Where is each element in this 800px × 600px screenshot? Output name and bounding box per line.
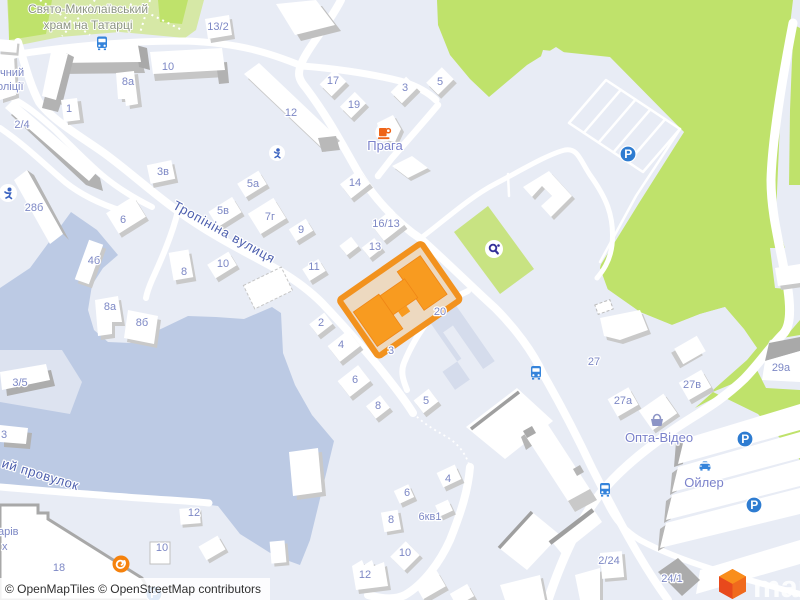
svg-text:8: 8 [375,400,381,412]
svg-text:храм на Татарці: храм на Татарці [43,18,132,32]
svg-text:10: 10 [156,542,168,554]
svg-text:13/2: 13/2 [207,21,228,33]
svg-text:3: 3 [1,429,7,441]
svg-text:19: 19 [348,99,360,111]
svg-text:Прага: Прага [367,138,403,153]
svg-text:9: 9 [298,224,304,236]
svg-text:10: 10 [217,258,229,270]
svg-text:16/13: 16/13 [372,218,400,230]
svg-text:чний: чний [0,67,24,79]
svg-text:5a: 5a [247,178,260,190]
svg-text:13: 13 [369,241,381,253]
svg-text:2/4: 2/4 [14,119,29,131]
svg-text:2/24: 2/24 [598,555,619,567]
svg-text:Свято-Миколаївський: Свято-Миколаївський [28,2,148,16]
svg-text:3: 3 [388,345,394,357]
svg-text:12: 12 [188,507,200,519]
svg-text:17: 17 [327,75,339,87]
svg-text:© OpenMapTiles © OpenStreetMap: © OpenMapTiles © OpenStreetMap contribut… [5,582,261,596]
svg-text:Ойлер: Ойлер [684,475,723,490]
svg-text:maptiler: maptiler [753,569,800,600]
svg-text:7г: 7г [265,211,275,223]
svg-text:10: 10 [399,547,411,559]
svg-text:4: 4 [338,339,344,351]
svg-text:х: х [2,541,8,553]
svg-text:2: 2 [318,317,324,329]
svg-text:1: 1 [66,103,72,115]
svg-text:3: 3 [402,82,408,94]
svg-text:4: 4 [445,473,451,485]
svg-text:27в: 27в [683,379,701,391]
svg-text:8a: 8a [122,76,135,88]
svg-text:29a: 29a [772,362,791,374]
svg-text:6: 6 [404,487,410,499]
svg-text:6: 6 [120,214,126,226]
svg-text:4б: 4б [88,255,100,267]
svg-text:3в: 3в [157,166,169,178]
svg-text:5: 5 [437,76,443,88]
svg-text:18: 18 [53,562,65,574]
svg-text:8: 8 [388,514,394,526]
svg-text:27: 27 [588,356,600,368]
svg-text:5в: 5в [217,205,229,217]
svg-text:5: 5 [423,395,429,407]
svg-text:3/5: 3/5 [12,377,27,389]
svg-text:оліції: оліції [0,81,24,93]
svg-text:Опта-Відео: Опта-Відео [625,430,693,445]
svg-text:27a: 27a [614,395,633,407]
svg-text:P: P [750,498,758,512]
svg-text:12: 12 [285,107,297,119]
svg-text:8: 8 [181,266,187,278]
svg-text:8a: 8a [104,301,117,313]
svg-text:14: 14 [349,177,361,189]
svg-text:P: P [741,432,749,446]
svg-text:8б: 8б [136,317,148,329]
svg-text:6кв1: 6кв1 [419,511,442,523]
svg-text:арів: арів [0,526,19,538]
svg-text:24/1: 24/1 [661,573,682,585]
svg-text:6: 6 [352,374,358,386]
svg-text:12: 12 [359,569,371,581]
svg-text:20: 20 [434,306,446,318]
svg-text:11: 11 [308,261,319,273]
svg-text:P: P [624,147,632,161]
svg-text:28б: 28б [25,202,44,214]
svg-text:10: 10 [162,61,174,73]
